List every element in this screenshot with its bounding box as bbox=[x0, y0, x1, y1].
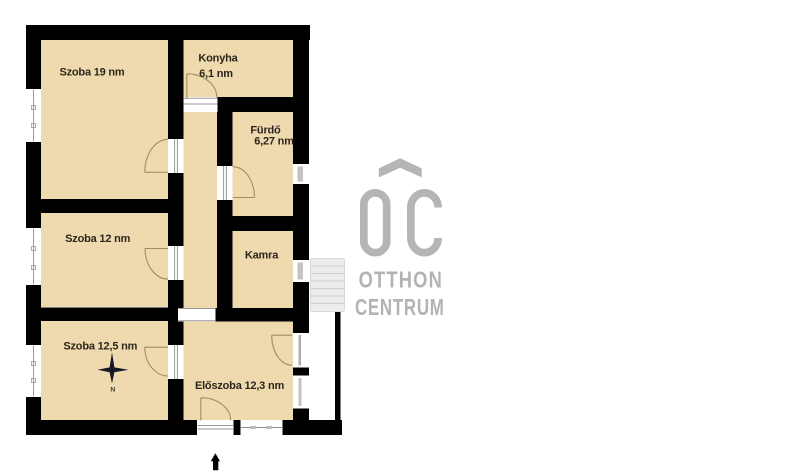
svg-text:Szoba 12 nm: Szoba 12 nm bbox=[65, 233, 130, 245]
svg-text:Kamra: Kamra bbox=[245, 250, 279, 262]
svg-text:OTTHON: OTTHON bbox=[359, 268, 443, 294]
svg-text:Szoba 19 nm: Szoba 19 nm bbox=[59, 67, 124, 79]
svg-text:6,1 nm: 6,1 nm bbox=[199, 68, 233, 80]
svg-text:CENTRUM: CENTRUM bbox=[355, 294, 445, 320]
svg-text:N: N bbox=[110, 387, 115, 394]
svg-text:Konyha: Konyha bbox=[198, 53, 238, 65]
svg-text:6,27 nm: 6,27 nm bbox=[254, 136, 294, 148]
svg-text:Előszoba 12,3 nm: Előszoba 12,3 nm bbox=[195, 380, 285, 392]
svg-text:Szoba 12,5 nm: Szoba 12,5 nm bbox=[63, 341, 137, 353]
